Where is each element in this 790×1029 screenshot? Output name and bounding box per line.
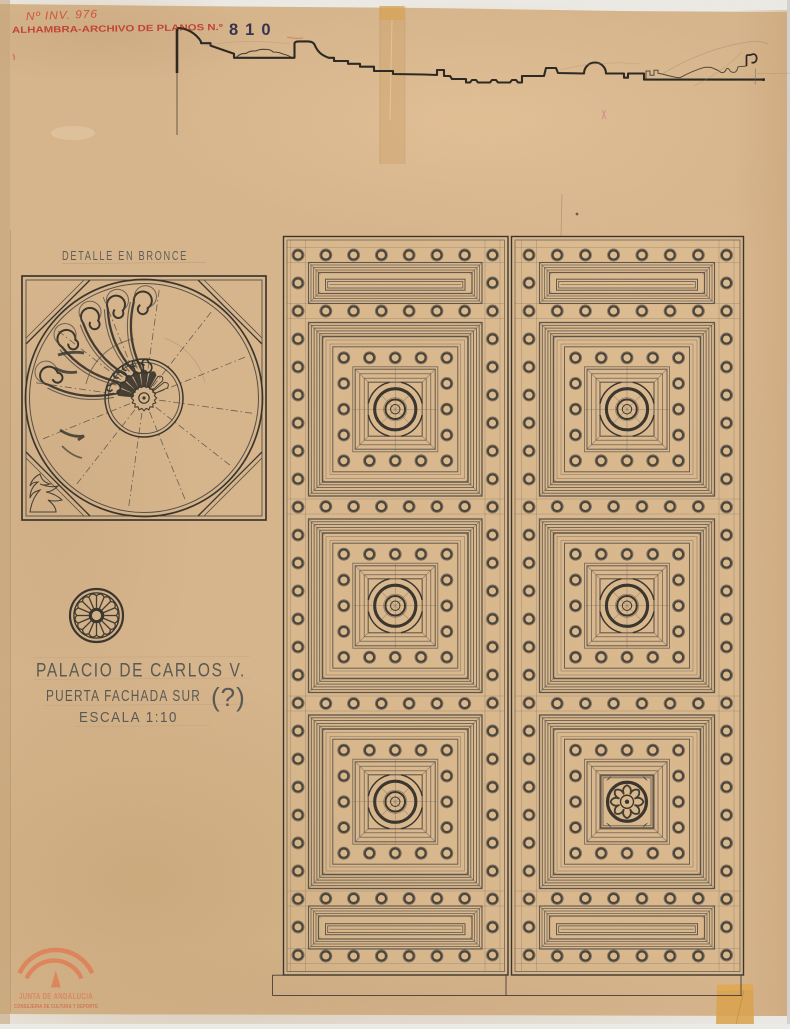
svg-text:(?): (?): [211, 682, 246, 712]
svg-text:CONSEJERIA DE CULTURA Y DEPORT: CONSEJERIA DE CULTURA Y DEPORTE: [14, 1004, 98, 1010]
svg-text:DETALLE EN BRONCE: DETALLE EN BRONCE: [62, 249, 188, 263]
svg-text:810: 810: [229, 21, 278, 39]
svg-text:JUNTA DE ANDALUCIA: JUNTA DE ANDALUCIA: [19, 992, 93, 1001]
svg-text:ESCALA 1:10: ESCALA 1:10: [79, 709, 178, 726]
svg-text:PUERTA FACHADA SUR: PUERTA FACHADA SUR: [46, 688, 201, 705]
svg-text:Nº INV. 976: Nº INV. 976: [26, 9, 98, 24]
